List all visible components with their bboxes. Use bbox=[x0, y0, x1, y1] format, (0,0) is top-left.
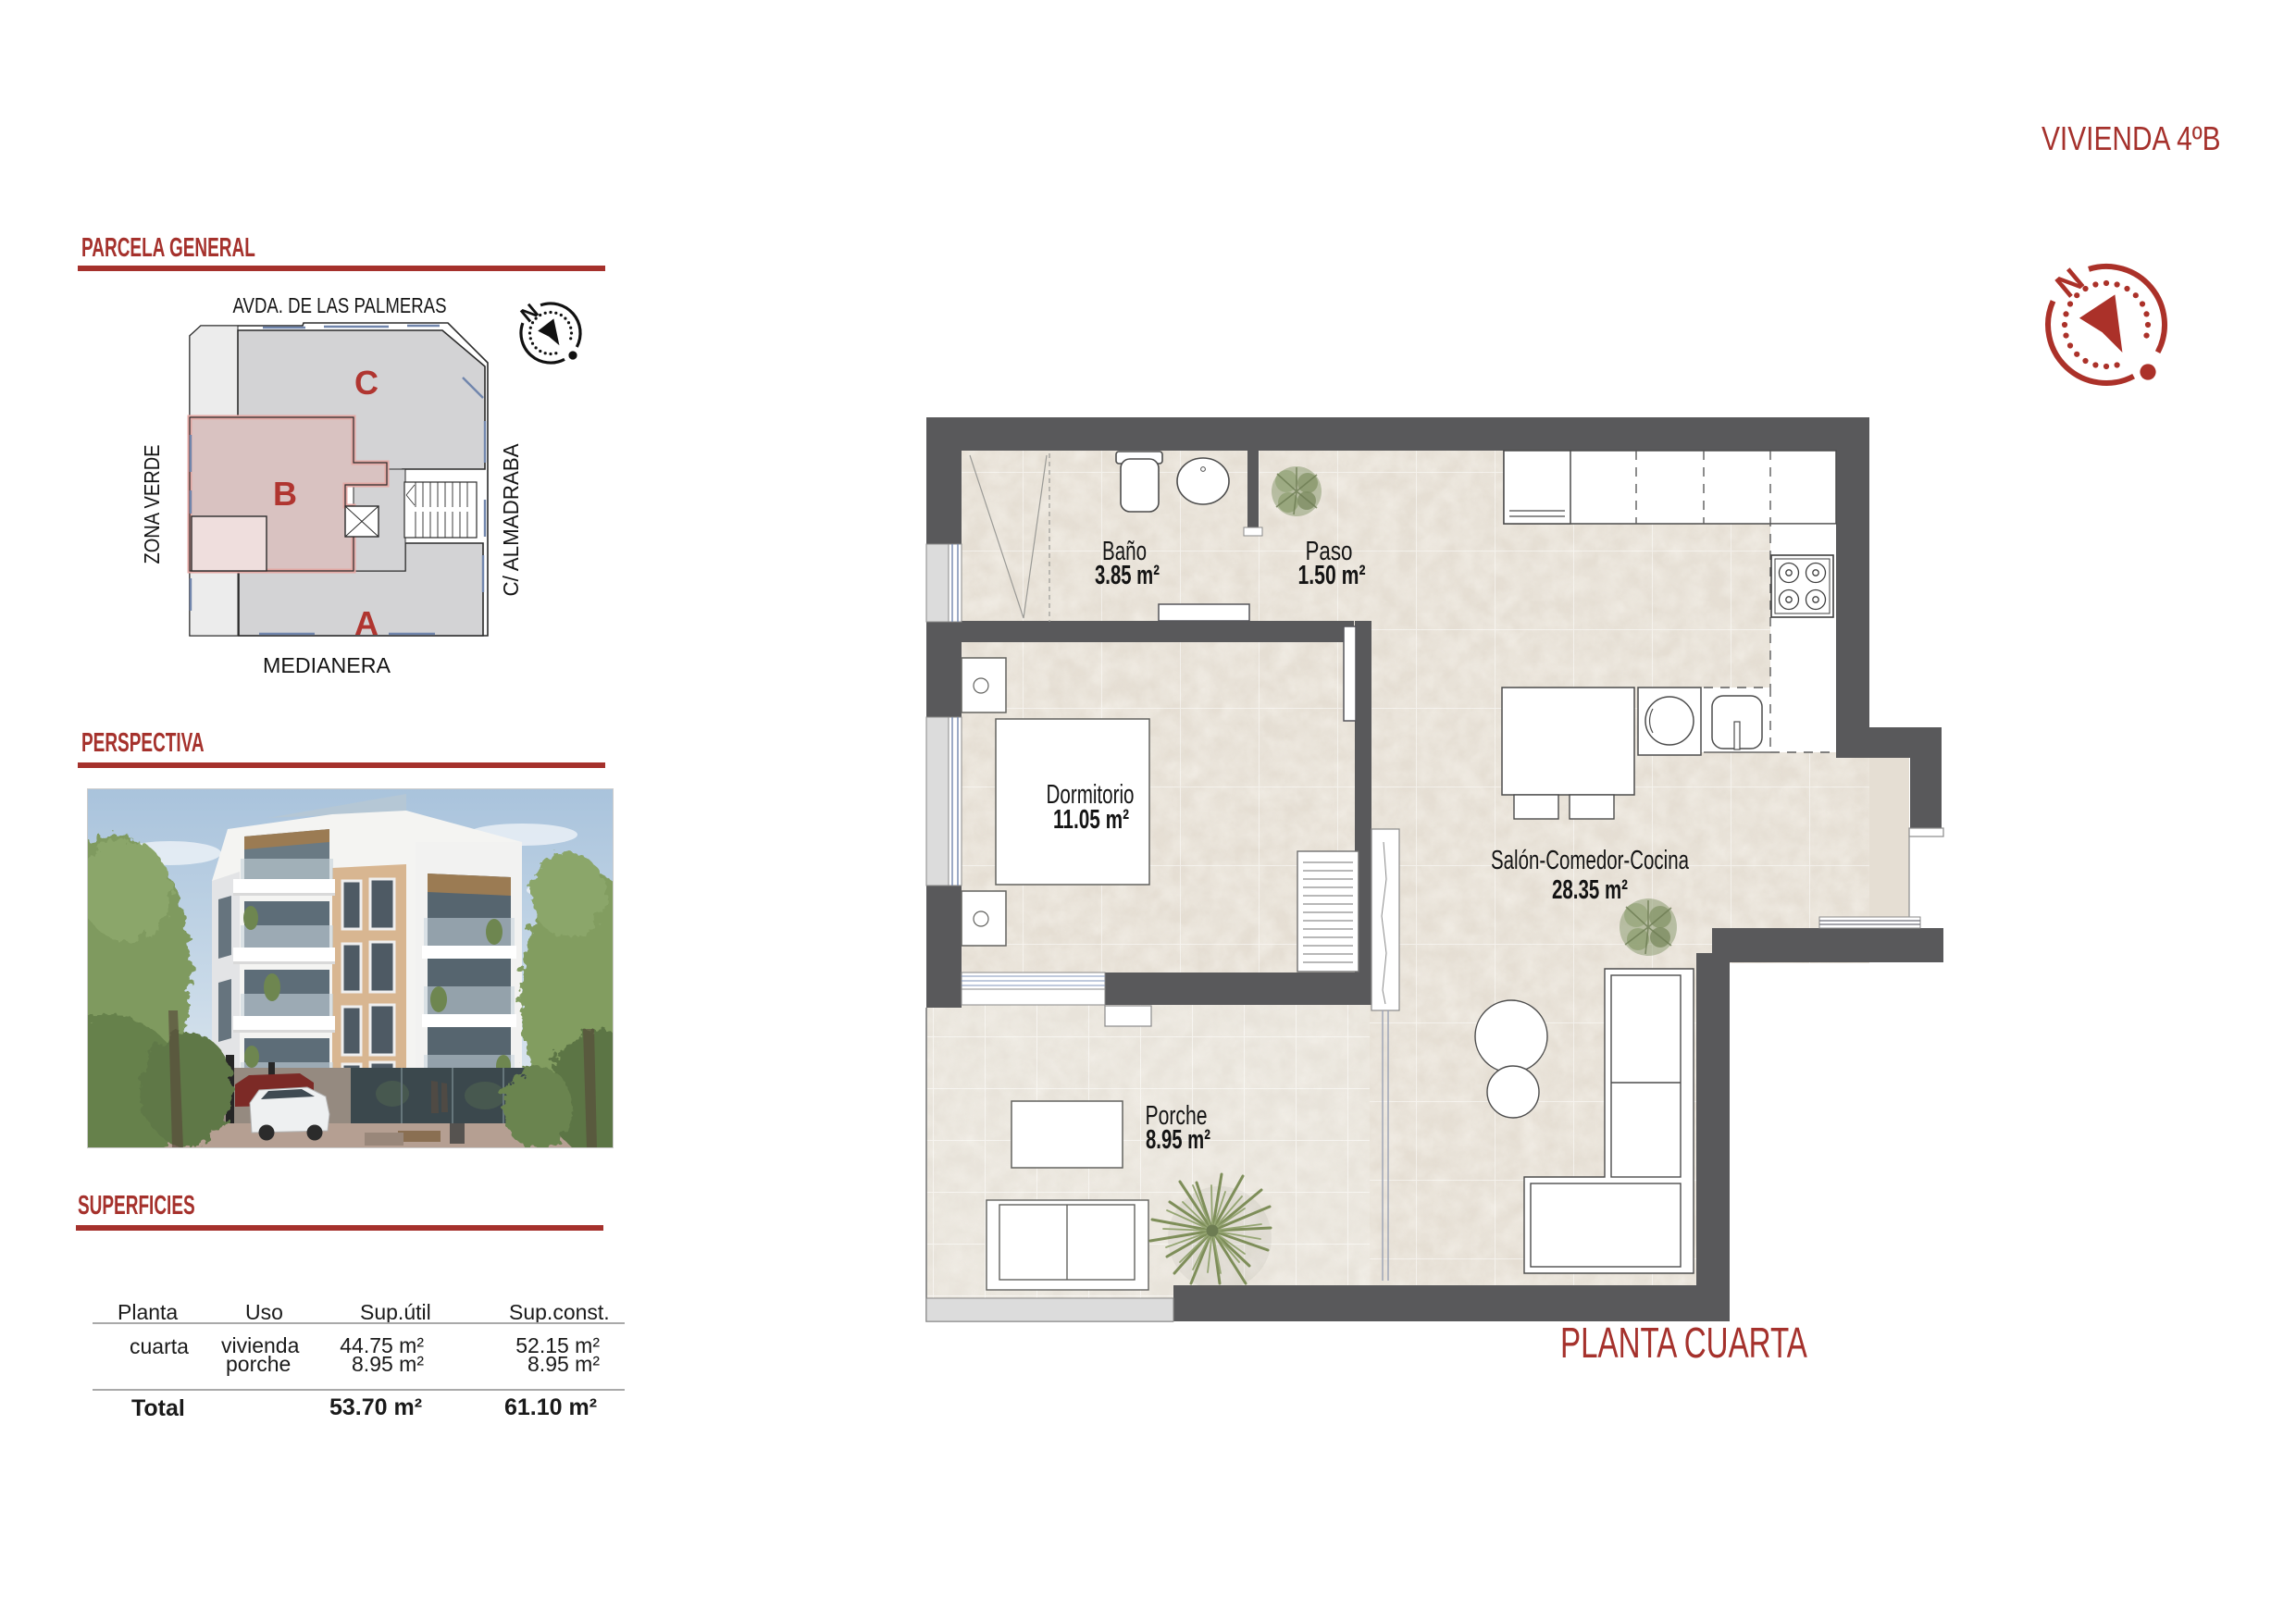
svg-text:B: B bbox=[273, 475, 297, 513]
svg-text:8.95 m²: 8.95 m² bbox=[1146, 1125, 1210, 1155]
svg-text:A: A bbox=[354, 604, 379, 642]
svg-text:3.85 m²: 3.85 m² bbox=[1095, 561, 1160, 590]
svg-text:11.05 m²: 11.05 m² bbox=[1053, 805, 1129, 835]
svg-text:N: N bbox=[515, 299, 542, 328]
svg-text:28.35 m²: 28.35 m² bbox=[1552, 875, 1628, 905]
svg-text:AVDA. DE LAS PALMERAS: AVDA. DE LAS PALMERAS bbox=[233, 293, 447, 317]
svg-text:1.50 m²: 1.50 m² bbox=[1298, 561, 1366, 590]
svg-text:ZONA VERDE: ZONA VERDE bbox=[140, 445, 164, 564]
svg-text:N: N bbox=[2048, 260, 2091, 304]
svg-text:Salón-Comedor-Cocina: Salón-Comedor-Cocina bbox=[1491, 846, 1690, 875]
svg-text:C/ ALMADRABA: C/ ALMADRABA bbox=[499, 443, 523, 597]
svg-text:MEDIANERA: MEDIANERA bbox=[263, 653, 391, 677]
svg-text:C: C bbox=[354, 364, 379, 402]
